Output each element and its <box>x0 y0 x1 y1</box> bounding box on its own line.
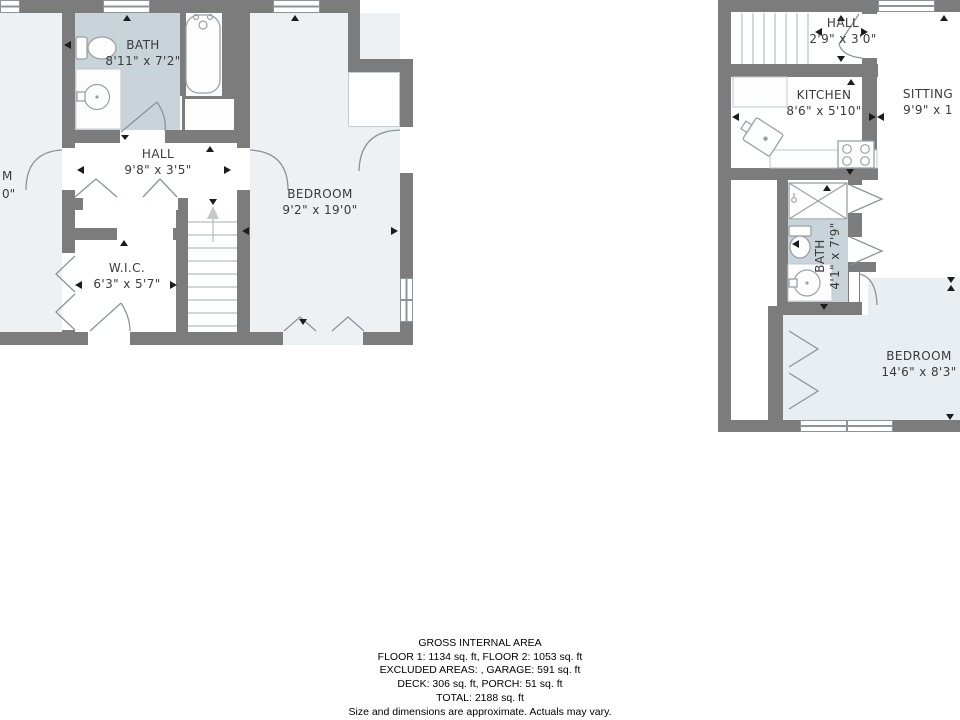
stove-icon <box>838 141 874 168</box>
room-name: BEDROOM <box>881 348 956 364</box>
summary-total: TOTAL: 2188 sq. ft <box>0 692 960 706</box>
sink-icon <box>76 69 121 129</box>
room-name: W.I.C. <box>93 260 160 276</box>
summary-floors: FLOOR 1: 1134 sq. ft, FLOOR 2: 1053 sq. … <box>0 651 960 665</box>
room-dims: 9'9" x 1 <box>903 102 953 118</box>
partial-room-label: M <box>2 169 12 183</box>
room-label-bath: BATH 8'11" x 7'2" <box>105 37 180 69</box>
room-name: HALL <box>809 15 876 31</box>
room-dims: 9'2" x 19'0" <box>282 202 357 218</box>
room-name: BATH <box>813 222 828 289</box>
room-label-wic: W.I.C. 6'3" x 5'7" <box>93 260 160 292</box>
shower-icon <box>789 183 847 219</box>
stairs <box>188 206 237 326</box>
left-plan-symbols <box>0 0 430 350</box>
room-label-kitchen: KITCHEN 8'6" x 5'10" <box>786 87 861 119</box>
summary-excluded: EXCLUDED AREAS: , GARAGE: 591 sq. ft <box>0 664 960 678</box>
room-dims: 4'1" x 7'9" <box>828 222 843 289</box>
room-name: SITTING <box>903 86 953 102</box>
floorplan-canvas: BATH 8'11" x 7'2" HALL 9'8" x 3'5" BEDRO… <box>0 0 960 720</box>
partial-room-label: 0" <box>2 187 15 201</box>
area-summary: GROSS INTERNAL AREA FLOOR 1: 1134 sq. ft… <box>0 637 960 719</box>
toilet-icon <box>789 226 811 258</box>
room-dims: 8'6" x 5'10" <box>786 103 861 119</box>
summary-deck-porch: DECK: 306 sq. ft, PORCH: 51 sq. ft <box>0 678 960 692</box>
room-dims: 8'11" x 7'2" <box>105 53 180 69</box>
summary-title: GROSS INTERNAL AREA <box>0 637 960 651</box>
room-label-hall: HALL 9'8" x 3'5" <box>124 146 191 178</box>
room-label-bedroom: BEDROOM 9'2" x 19'0" <box>282 186 357 218</box>
room-label-bath: BATH 4'1" x 7'9" <box>813 222 843 289</box>
room-name: HALL <box>124 146 191 162</box>
room-label-sitting: SITTING 9'9" x 1 <box>903 86 953 118</box>
room-dims: 14'6" x 8'3" <box>881 364 956 380</box>
stairs-up-arrow <box>207 206 219 219</box>
room-name: BEDROOM <box>282 186 357 202</box>
room-label-hall: HALL 2'9" x 3'0" <box>809 15 876 47</box>
room-name: BATH <box>105 37 180 53</box>
room-label-bedroom: BEDROOM 14'6" x 8'3" <box>881 348 956 380</box>
room-dims: 9'8" x 3'5" <box>124 162 191 178</box>
bathtub-icon <box>186 15 220 94</box>
room-dims: 2'9" x 3'0" <box>809 31 876 47</box>
room-name: KITCHEN <box>786 87 861 103</box>
room-dims: 6'3" x 5'7" <box>93 276 160 292</box>
summary-disclaimer: Size and dimensions are approximate. Act… <box>0 706 960 720</box>
stairs <box>742 13 808 64</box>
